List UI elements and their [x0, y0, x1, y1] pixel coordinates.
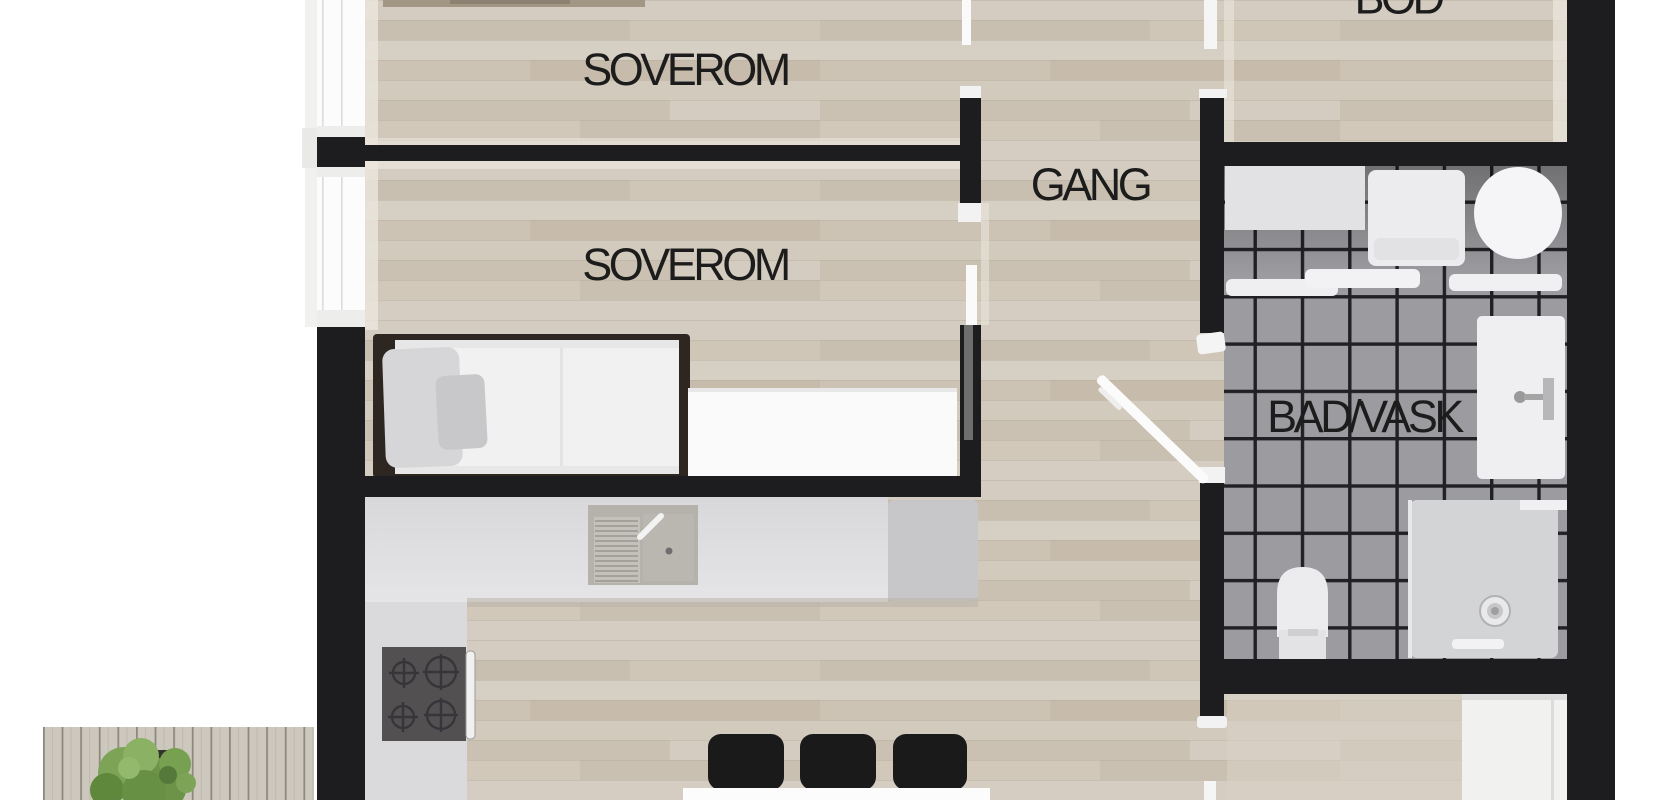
svg-text:BOD: BOD	[1354, 0, 1443, 24]
svg-text:SOVEROM: SOVEROM	[582, 239, 788, 290]
svg-text:BAD/VASK: BAD/VASK	[1267, 391, 1464, 442]
svg-text:GANG: GANG	[1031, 159, 1150, 210]
svg-text:SOVEROM: SOVEROM	[582, 44, 788, 95]
